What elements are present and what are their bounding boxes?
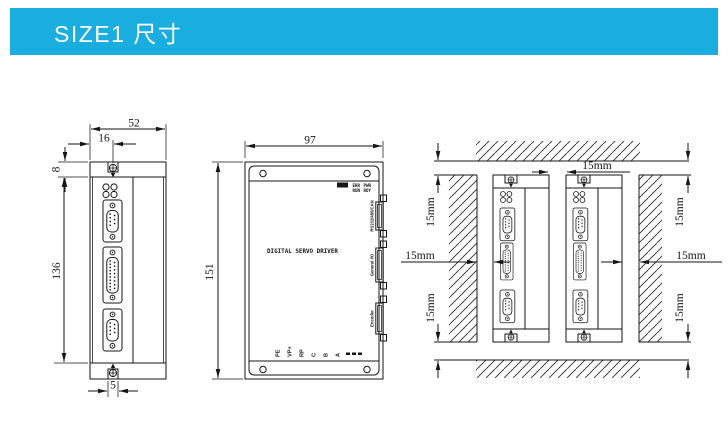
dim-body-height: 136 — [51, 262, 63, 280]
mount-hole — [260, 170, 266, 176]
connector-label-encoder: Encoder — [370, 310, 375, 327]
dim-slot-width: 5 — [110, 380, 116, 392]
section-header-bar: SIZE1 尺寸 — [10, 8, 718, 55]
mounted-unit-1 — [493, 175, 549, 342]
dim-overall-width: 52 — [128, 118, 140, 130]
left-wall — [449, 175, 477, 342]
mount-hole — [260, 366, 266, 372]
db15-connector-middle — [103, 247, 122, 303]
mounted-unit-2 — [566, 175, 622, 342]
terminal-b: B — [324, 353, 330, 357]
dim-height: 151 — [204, 263, 216, 281]
mount-hole — [364, 170, 370, 176]
led-label-run: RUN — [353, 188, 361, 193]
clearance-right: 15mm — [676, 250, 705, 262]
vent-holes — [103, 184, 117, 198]
right-wall — [639, 175, 662, 342]
dimension-drawing: 52 16 8 136 5 — [0, 55, 728, 435]
dim-slot-offset: 16 — [98, 133, 110, 145]
bottom-screw-icon — [109, 364, 116, 377]
page-title: SIZE1 尺寸 — [10, 15, 182, 49]
db9-connector-top — [103, 200, 122, 242]
terminal-rp: RP — [300, 349, 306, 357]
clearance-bottom-right: 15mm — [674, 293, 686, 322]
clearance-top-right: 15mm — [674, 197, 686, 226]
terminal-c: C — [312, 353, 318, 357]
top-screw-icon — [109, 164, 116, 177]
brand-logo-block — [337, 183, 348, 188]
terminal-pe: PE — [276, 349, 282, 357]
led-label-rdy: RDY — [364, 188, 372, 193]
clearance-bottom-left: 15mm — [425, 293, 437, 322]
connector-rs232: RS232/485/CAN — [370, 195, 387, 237]
dim-flange-height: 8 — [51, 166, 63, 172]
terminal-vpp: VP+ — [288, 346, 294, 357]
side-view: ERR PWR RUN RDY DIGITAL SERVO DRIVER RS2… — [204, 135, 387, 380]
clearance-left: 15mm — [405, 250, 434, 262]
connector-label-rs232: RS232/485/CAN — [370, 200, 375, 231]
terminal-a: A — [336, 353, 342, 357]
bottom-wall — [476, 360, 640, 378]
mounting-view: 15mm 15mm 15mm 15mm 15mm 15mm 15 — [401, 141, 722, 378]
db9-connector-bottom — [103, 309, 122, 351]
panel-title: DIGITAL SERVO DRIVER — [267, 249, 338, 255]
connector-label-general-io: General I/O — [370, 253, 375, 276]
page: SIZE1 尺寸 — [0, 0, 728, 435]
clearance-between-units: 15mm — [582, 160, 611, 172]
connector-general-io: General I/O — [370, 241, 387, 289]
dim-depth: 97 — [304, 135, 316, 147]
clearance-top-left: 15mm — [425, 197, 437, 226]
top-wall — [476, 141, 640, 161]
terminal-labels: PE VP+ RP C B A — [276, 346, 363, 357]
mount-hole — [364, 366, 370, 372]
front-view: 52 16 8 136 5 — [51, 118, 167, 398]
connector-encoder: Encoder — [370, 296, 387, 341]
